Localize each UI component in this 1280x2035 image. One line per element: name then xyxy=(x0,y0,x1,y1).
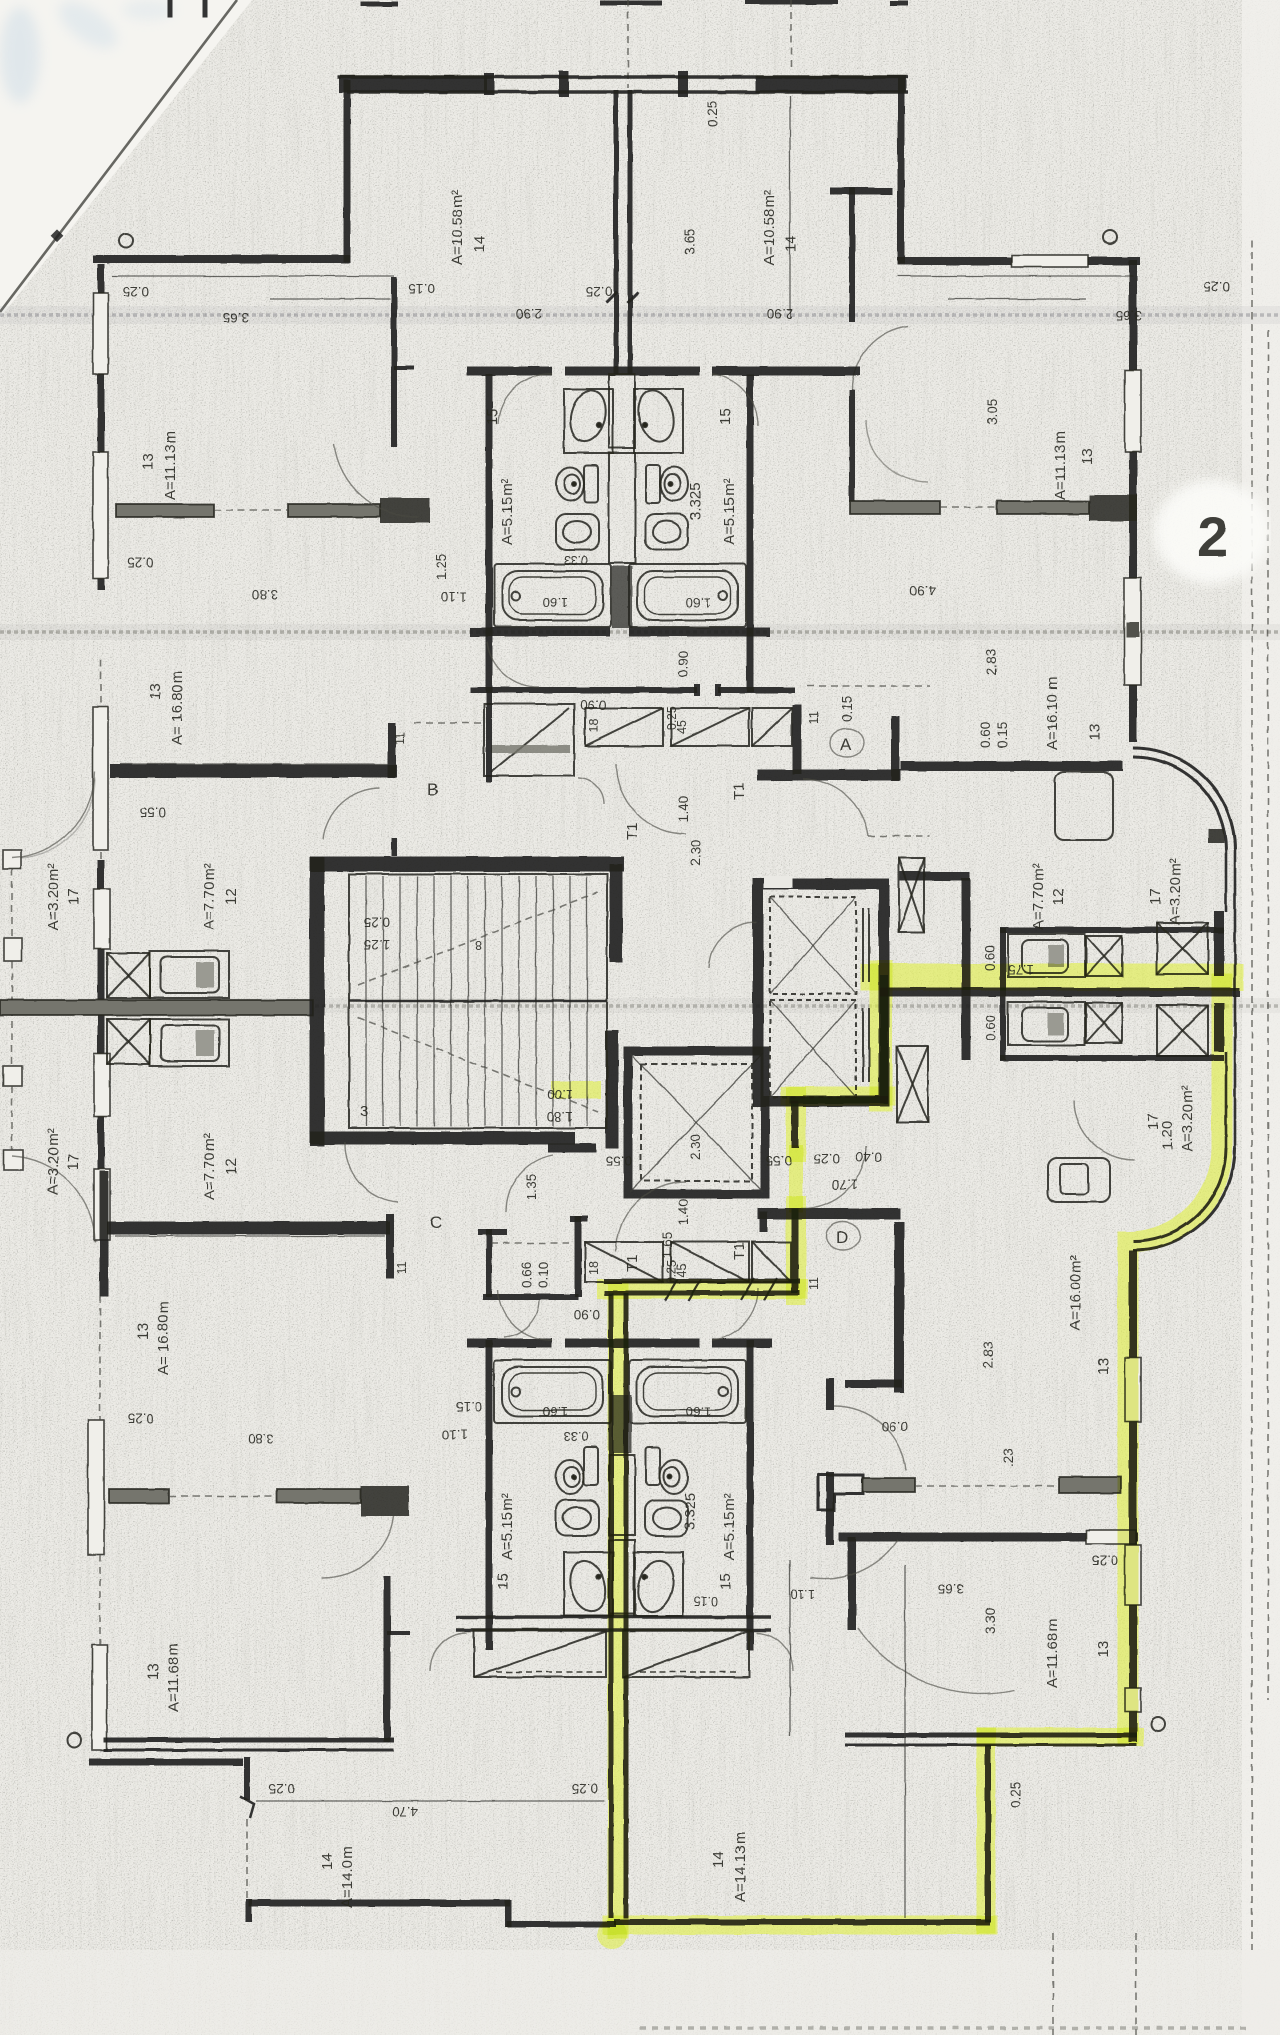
svg-text:A=11.13 m: A=11.13 m xyxy=(162,431,179,500)
svg-text:3.05: 3.05 xyxy=(985,399,1000,425)
svg-text:2.90: 2.90 xyxy=(516,306,542,321)
svg-text:18: 18 xyxy=(587,1261,601,1275)
svg-text:0.90: 0.90 xyxy=(676,651,691,677)
svg-text:0.15: 0.15 xyxy=(409,281,435,296)
svg-text:A=11.68 m: A=11.68 m xyxy=(165,1643,182,1712)
svg-text:0.40: 0.40 xyxy=(856,1149,882,1164)
svg-text:0.55: 0.55 xyxy=(140,805,166,820)
svg-text:A=3.20 m²: A=3.20 m² xyxy=(45,863,62,930)
svg-text:11: 11 xyxy=(807,711,821,724)
svg-text:0.25: 0.25 xyxy=(1092,1553,1118,1568)
svg-text:17: 17 xyxy=(65,888,82,905)
svg-text:A=5.15 m²: A=5.15 m² xyxy=(721,1493,738,1560)
svg-text:A=5.15 m²: A=5.15 m² xyxy=(721,478,738,545)
svg-text:17: 17 xyxy=(65,1153,82,1170)
svg-text:A=7.70 m²: A=7.70 m² xyxy=(201,863,218,930)
svg-text:0.33: 0.33 xyxy=(564,553,588,567)
svg-text:1.10: 1.10 xyxy=(442,1427,468,1442)
svg-text:3.80: 3.80 xyxy=(252,587,278,602)
svg-text:A=5.15 m²: A=5.15 m² xyxy=(499,478,516,545)
svg-text:0.25: 0.25 xyxy=(1008,1782,1023,1808)
svg-text:15: 15 xyxy=(717,408,734,425)
svg-text:1.75: 1.75 xyxy=(1008,962,1034,977)
svg-text:T1: T1 xyxy=(731,1242,748,1260)
svg-text:A=7.70 m²: A=7.70 m² xyxy=(1030,863,1047,930)
svg-text:15: 15 xyxy=(717,1573,734,1590)
svg-text:A: A xyxy=(840,735,852,754)
svg-text:A=7.70 m²: A=7.70 m² xyxy=(201,1133,218,1200)
svg-text:1.40: 1.40 xyxy=(676,1199,691,1225)
svg-text:2: 2 xyxy=(1197,505,1228,568)
svg-text:0.90: 0.90 xyxy=(580,697,606,712)
svg-text:13: 13 xyxy=(1087,723,1104,740)
svg-text:3.80: 3.80 xyxy=(248,1431,274,1446)
svg-text:1.60: 1.60 xyxy=(543,1404,568,1419)
svg-text:11: 11 xyxy=(807,1277,821,1290)
svg-text:0.25: 0.25 xyxy=(665,1260,679,1284)
svg-text:A=10.58 m²: A=10.58 m² xyxy=(449,190,466,265)
svg-text:0.90: 0.90 xyxy=(882,1419,908,1434)
svg-text:1.60: 1.60 xyxy=(686,595,711,610)
svg-text:D: D xyxy=(836,1228,848,1247)
svg-text:15: 15 xyxy=(484,408,501,425)
svg-text:0.25: 0.25 xyxy=(572,1781,598,1796)
svg-text:T1: T1 xyxy=(624,822,641,840)
svg-text:A=5.15 m²: A=5.15 m² xyxy=(499,1493,516,1560)
svg-text:B: B xyxy=(427,780,438,799)
svg-text:13: 13 xyxy=(145,1663,162,1680)
svg-text:4.90: 4.90 xyxy=(910,583,936,598)
svg-text:A=11.68 m: A=11.68 m xyxy=(1044,1619,1061,1688)
svg-text:0.25: 0.25 xyxy=(665,706,679,730)
svg-text:3.325: 3.325 xyxy=(682,1492,699,1530)
svg-text:13: 13 xyxy=(1095,1358,1112,1375)
svg-text:0.25: 0.25 xyxy=(128,1411,154,1426)
svg-text:2.30: 2.30 xyxy=(688,840,703,866)
svg-text:0.25: 0.25 xyxy=(814,1151,840,1166)
svg-text:2.83: 2.83 xyxy=(984,649,999,675)
svg-text:13: 13 xyxy=(140,453,157,470)
svg-text:8: 8 xyxy=(475,938,482,952)
svg-text:4.70: 4.70 xyxy=(392,1804,418,1819)
svg-text:1.00: 1.00 xyxy=(547,1087,573,1102)
svg-text:A=11.13 m: A=11.13 m xyxy=(1052,431,1069,500)
svg-text:A=16.00 m²: A=16.00 m² xyxy=(1067,1255,1084,1330)
svg-text:1.70: 1.70 xyxy=(832,1177,858,1192)
svg-text:12: 12 xyxy=(223,1158,240,1175)
svg-text:0.15: 0.15 xyxy=(694,1594,718,1608)
svg-text:0.10: 0.10 xyxy=(536,1262,551,1288)
svg-text:13: 13 xyxy=(1079,448,1096,465)
svg-text:0.25: 0.25 xyxy=(586,284,612,299)
svg-text:3.65: 3.65 xyxy=(938,1581,964,1596)
svg-text:1.40: 1.40 xyxy=(676,796,691,822)
svg-text:1.60: 1.60 xyxy=(686,1404,711,1419)
svg-text:14: 14 xyxy=(319,1853,336,1870)
svg-text:A= 16.80 m: A= 16.80 m xyxy=(155,1301,172,1375)
svg-text:14: 14 xyxy=(710,1851,727,1868)
svg-text:1.25: 1.25 xyxy=(434,554,449,580)
svg-text:0.33: 0.33 xyxy=(564,1429,588,1443)
svg-text:2.83: 2.83 xyxy=(981,1342,996,1368)
svg-text:A=10.58 m²: A=10.58 m² xyxy=(761,190,778,265)
svg-text:C: C xyxy=(430,1213,442,1232)
svg-text:A= 16.80 m: A= 16.80 m xyxy=(169,671,186,745)
svg-text:3.325: 3.325 xyxy=(687,482,704,520)
svg-text:18: 18 xyxy=(587,719,601,733)
svg-text:0.60: 0.60 xyxy=(983,1015,998,1041)
svg-text:A=14.0 m: A=14.0 m xyxy=(339,1846,356,1908)
svg-text:A=3.20 m²: A=3.20 m² xyxy=(1167,858,1184,925)
svg-text:12: 12 xyxy=(1050,888,1067,905)
svg-text:13: 13 xyxy=(147,683,164,700)
svg-text:3.65: 3.65 xyxy=(223,310,249,325)
svg-text:1.20: 1.20 xyxy=(1159,1121,1176,1150)
svg-text:3.30: 3.30 xyxy=(983,1608,998,1634)
svg-text:2.90: 2.90 xyxy=(767,306,793,321)
svg-text:T1: T1 xyxy=(624,1254,641,1272)
svg-text:11: 11 xyxy=(393,732,407,745)
svg-text:0.25: 0.25 xyxy=(269,1781,295,1796)
svg-text:11: 11 xyxy=(395,1261,409,1274)
svg-text:0.55: 0.55 xyxy=(606,1153,632,1168)
svg-text:0.15: 0.15 xyxy=(840,696,855,722)
svg-text:13: 13 xyxy=(135,1323,152,1340)
svg-text:12: 12 xyxy=(223,888,240,905)
svg-text:1.60: 1.60 xyxy=(543,595,568,610)
svg-text:0.15: 0.15 xyxy=(995,722,1010,748)
svg-text:3.65: 3.65 xyxy=(1116,308,1142,323)
svg-text:15: 15 xyxy=(495,1573,512,1590)
svg-text:0.25: 0.25 xyxy=(1204,279,1230,294)
svg-text:1.25: 1.25 xyxy=(364,937,390,952)
svg-text:0.25: 0.25 xyxy=(705,101,720,127)
svg-text:0.25: 0.25 xyxy=(128,555,154,570)
svg-text:1.10: 1.10 xyxy=(441,589,467,604)
svg-text:13: 13 xyxy=(1095,1640,1112,1657)
svg-text:0.25: 0.25 xyxy=(364,915,390,930)
svg-text:0.66: 0.66 xyxy=(519,1262,534,1288)
svg-text:A=14.13 m: A=14.13 m xyxy=(732,1832,749,1902)
svg-text:3.65: 3.65 xyxy=(682,229,697,255)
svg-text:0.60: 0.60 xyxy=(983,945,998,971)
svg-text:0.90: 0.90 xyxy=(574,1307,600,1322)
svg-text:1.65: 1.65 xyxy=(660,1232,675,1258)
svg-text:0.60: 0.60 xyxy=(978,722,993,748)
svg-text:A=3.20 m²: A=3.20 m² xyxy=(1179,1085,1196,1152)
svg-text:17: 17 xyxy=(1147,888,1164,905)
svg-text:A=3.20 m²: A=3.20 m² xyxy=(45,1128,62,1195)
svg-text:2.30: 2.30 xyxy=(688,1134,703,1160)
svg-text:1.35: 1.35 xyxy=(524,1174,539,1200)
svg-text:A=16.10 m: A=16.10 m xyxy=(1044,677,1061,750)
svg-text:14: 14 xyxy=(783,235,800,252)
svg-text:1.80: 1.80 xyxy=(547,1109,573,1124)
svg-text:3: 3 xyxy=(360,1103,368,1120)
svg-text:1.10: 1.10 xyxy=(791,1587,815,1601)
svg-text:.23: .23 xyxy=(1001,1448,1016,1467)
svg-text:0.55: 0.55 xyxy=(766,1153,792,1168)
svg-text:14: 14 xyxy=(471,235,488,252)
svg-text:0.25: 0.25 xyxy=(123,284,149,299)
svg-text:T1: T1 xyxy=(731,782,748,800)
svg-text:0.15: 0.15 xyxy=(456,1399,482,1414)
